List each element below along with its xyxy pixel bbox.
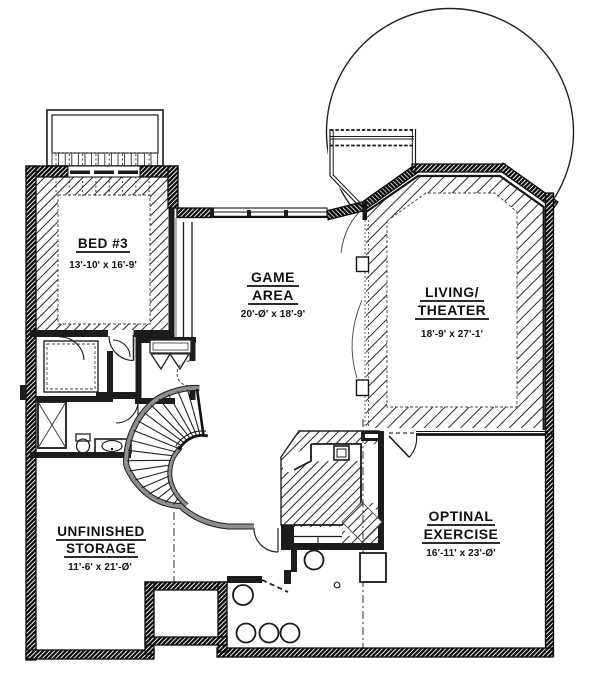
svg-text:EXERCISE: EXERCISE	[424, 526, 499, 542]
svg-text:OPTINAL: OPTINAL	[429, 508, 494, 524]
svg-text:20'-Ø' x 18'-9': 20'-Ø' x 18'-9'	[241, 309, 305, 320]
svg-text:THEATER: THEATER	[418, 302, 487, 318]
svg-text:AREA: AREA	[252, 287, 294, 303]
svg-text:18'-9' x 27'-1': 18'-9' x 27'-1'	[421, 329, 483, 340]
svg-text:STORAGE: STORAGE	[66, 541, 136, 556]
svg-text:LIVING/: LIVING/	[425, 284, 479, 300]
svg-text:UNFINISHED: UNFINISHED	[57, 524, 145, 539]
svg-text:BED #3: BED #3	[78, 236, 128, 251]
svg-text:11'-6' x 21'-Ø': 11'-6' x 21'-Ø'	[68, 562, 132, 573]
svg-text:13'-10' x 16'-9': 13'-10' x 16'-9'	[69, 260, 137, 271]
svg-text:16'-11' x 23'-Ø': 16'-11' x 23'-Ø'	[426, 548, 496, 559]
svg-text:GAME: GAME	[251, 269, 295, 285]
